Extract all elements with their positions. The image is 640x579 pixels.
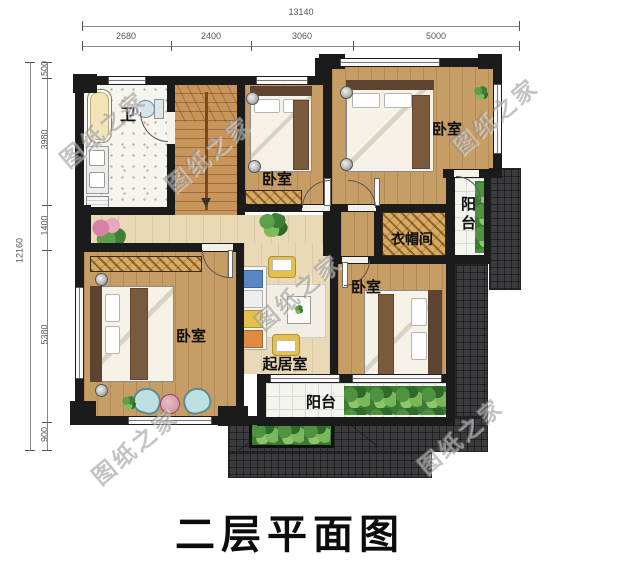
dim-tick	[25, 62, 35, 63]
room-label-living-room: 起居室	[257, 357, 313, 372]
wall	[236, 243, 244, 425]
roof-tiles	[228, 452, 432, 478]
dim-tick	[519, 41, 520, 51]
page-title: 二层平面图	[170, 502, 410, 560]
wall	[257, 417, 455, 426]
dim-line	[30, 62, 31, 451]
corner-post	[218, 406, 248, 426]
wall	[484, 178, 491, 264]
window	[108, 77, 146, 84]
bed-headboard	[90, 286, 102, 382]
stair-arrow-icon	[201, 198, 211, 207]
dim-left-total: 12160	[16, 231, 25, 271]
armchair-seat	[276, 340, 296, 352]
dim-top-seg-2: 2400	[181, 32, 241, 41]
window-balcony-living	[270, 375, 340, 382]
dim-left-seg-5: 900	[41, 415, 50, 455]
room-label-bedroom-bottom-left: 卧室	[166, 329, 216, 344]
pillow	[105, 326, 120, 354]
balcony-bottom-plants	[344, 386, 446, 415]
wardrobe-bl-bedroom	[90, 256, 202, 272]
sofa-cushion	[243, 270, 263, 288]
corner-post	[73, 74, 97, 93]
dim-left-seg-4: 5380	[41, 315, 50, 355]
dim-line	[82, 46, 520, 47]
room-label-bedroom-mid: 卧室	[252, 172, 302, 187]
pillow	[411, 332, 427, 360]
small-plant	[122, 396, 136, 410]
dim-left-seg-1: 500	[41, 49, 50, 89]
dim-top-seg-4: 5000	[406, 32, 466, 41]
pillow	[105, 294, 120, 322]
window-balcony-bedroom	[352, 375, 442, 382]
bed-blanket	[293, 100, 309, 170]
bed-headboard	[250, 86, 312, 96]
sofa-cushion	[243, 330, 263, 348]
dim-left-seg-3: 1400	[41, 206, 50, 246]
dim-tick	[25, 450, 35, 451]
bed-blanket	[378, 294, 394, 376]
pillow	[384, 93, 412, 108]
hall-plant	[258, 213, 288, 237]
wall	[446, 169, 455, 264]
nightstand	[246, 92, 259, 105]
room-label-cloakroom: 衣帽间	[383, 232, 441, 246]
window	[340, 59, 440, 66]
floor-plan-canvas: 13140 2680 2400 3060 5000 12160 500 3980…	[0, 0, 640, 579]
window	[76, 287, 83, 379]
dim-tick	[42, 205, 52, 206]
nightstand	[95, 273, 108, 286]
roof-tiles	[489, 168, 521, 290]
corner-post	[478, 54, 502, 69]
dim-tick	[42, 78, 52, 79]
wall	[84, 207, 170, 215]
dim-tick	[251, 41, 252, 51]
room-label-bedroom-bottom-right: 卧室	[341, 280, 391, 295]
corridor-floor	[341, 212, 374, 256]
door-gap	[167, 112, 175, 144]
dim-tick	[42, 450, 52, 451]
window	[256, 77, 308, 84]
dim-tick	[42, 62, 52, 63]
nightstand	[340, 86, 353, 99]
sink	[89, 172, 105, 188]
bed-headboard	[428, 290, 442, 380]
dim-top-seg-3: 3060	[272, 32, 332, 41]
dim-line	[82, 26, 520, 27]
dim-tick	[519, 21, 520, 31]
pillow	[411, 298, 427, 326]
armchair-seat	[272, 259, 292, 271]
dim-line	[47, 62, 48, 451]
bed-blanket	[130, 288, 148, 380]
wall-stub	[75, 205, 91, 252]
dim-tick	[82, 21, 83, 31]
dim-tick	[171, 41, 172, 51]
nightstand	[95, 384, 108, 397]
wall	[237, 84, 245, 215]
dim-left-seg-2: 3980	[41, 120, 50, 160]
dim-tick	[42, 422, 52, 423]
dim-tick	[353, 41, 354, 51]
pillow	[352, 93, 380, 108]
nightstand	[340, 158, 353, 171]
corner-post	[70, 401, 96, 425]
bed-headboard	[346, 80, 434, 90]
room-label-balcony-bottom: 阳台	[299, 395, 343, 410]
dim-tick	[82, 41, 83, 51]
room-label-balcony-right: 阳台	[460, 196, 475, 234]
dim-top-total: 13140	[271, 8, 331, 17]
dim-tick	[42, 250, 52, 251]
wall	[446, 264, 455, 426]
dim-top-seg-1: 2680	[96, 32, 156, 41]
